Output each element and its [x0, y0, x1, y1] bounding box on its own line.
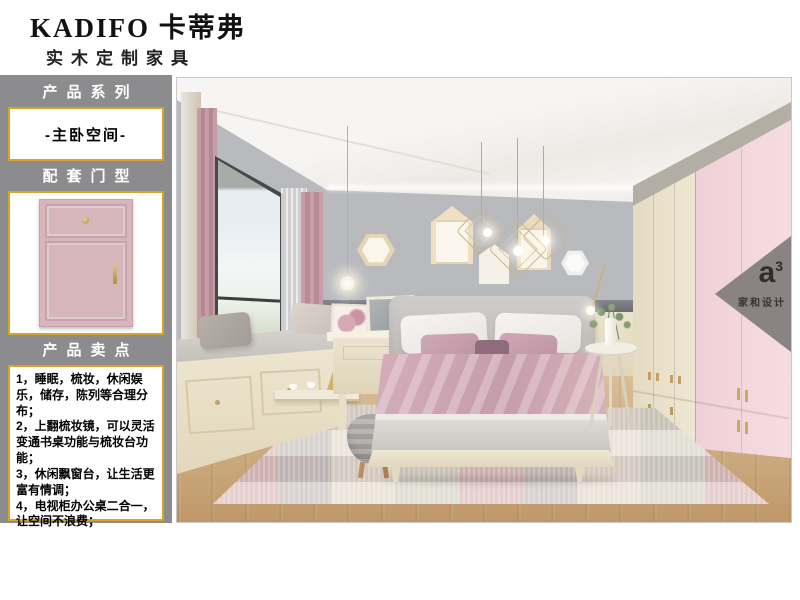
- desk-pendant-bulb: [340, 276, 355, 291]
- bedroom-photo: a3 家和设计: [176, 77, 792, 523]
- seat-pillow-gray: [197, 311, 252, 350]
- wardrobe-handle: [656, 373, 659, 381]
- flower-vase: [605, 318, 616, 346]
- bed-frame: [367, 450, 615, 467]
- wardrobe-handle: [737, 388, 740, 400]
- wardrobe-handle: [678, 376, 681, 384]
- brand-title: KADIFO 卡蒂弗: [30, 6, 246, 45]
- selling-point: 4，电视柜办公桌二合一，让空间不浪费；: [16, 499, 156, 531]
- selling-point: 3，休闲飘窗台，让生活更富有情调；: [16, 467, 156, 499]
- pendant-bulb: [483, 228, 492, 237]
- selling-point: 2，上翻梳妆镜，可以灵活变通书桌功能与梳妆台功能；: [16, 419, 156, 466]
- wardrobe-handle: [670, 407, 673, 415]
- ceiling-cove-glow: [327, 185, 639, 190]
- watermark-studio-name: 家和设计: [738, 294, 786, 309]
- wardrobe-handle: [745, 390, 748, 402]
- desk-pendant-cord: [347, 126, 348, 278]
- wardrobe-handle: [648, 372, 651, 380]
- door-box: [8, 191, 164, 335]
- dresser-leg: [339, 394, 346, 430]
- series-box: -主卧空间-: [8, 107, 164, 161]
- door-handle-icon: [113, 264, 117, 284]
- section-title-door: 配套门型: [0, 167, 172, 187]
- wardrobe-handle: [670, 375, 673, 383]
- door-drawer-panel: [45, 204, 127, 238]
- nightstand-leg: [609, 352, 612, 426]
- catalog-page: KADIFO 卡蒂弗 实木定制家具 产品系列 -主卧空间- 配套门型 产品卖点 …: [0, 0, 800, 600]
- series-label: -主卧空间-: [45, 124, 127, 145]
- section-title-series: 产品系列: [0, 83, 172, 103]
- selling-point: 1，睡眠，梳妆，休闲娱乐，储存，陈列等合理分布；: [16, 372, 156, 419]
- cabinet-door-sample: [39, 199, 133, 327]
- seat-drawer-knob: [215, 400, 220, 405]
- pendant-bulb: [541, 236, 550, 245]
- watermark-logo: a3: [759, 258, 783, 288]
- wardrobe-handle: [737, 420, 740, 432]
- selling-points-box: 1，睡眠，梳妆，休闲娱乐，储存，陈列等合理分布； 2，上翻梳妆镜，可以灵活变通书…: [8, 365, 164, 521]
- sidebar: 产品系列 -主卧空间- 配套门型 产品卖点 1，睡眠，梳妆，休闲娱乐，储存，陈列…: [0, 75, 172, 523]
- section-title-points: 产品卖点: [0, 341, 172, 361]
- bed-blanket: [375, 354, 607, 418]
- wall-lamp-bulb: [586, 306, 595, 315]
- brand-tagline: 实木定制家具: [46, 44, 196, 69]
- bed-sheet: [371, 414, 611, 452]
- wardrobe-handle: [745, 422, 748, 434]
- door-lower-panel: [45, 241, 127, 321]
- door-knob-icon: [82, 217, 89, 224]
- seat-drawer: [185, 376, 255, 434]
- pendant-bulb: [513, 246, 523, 256]
